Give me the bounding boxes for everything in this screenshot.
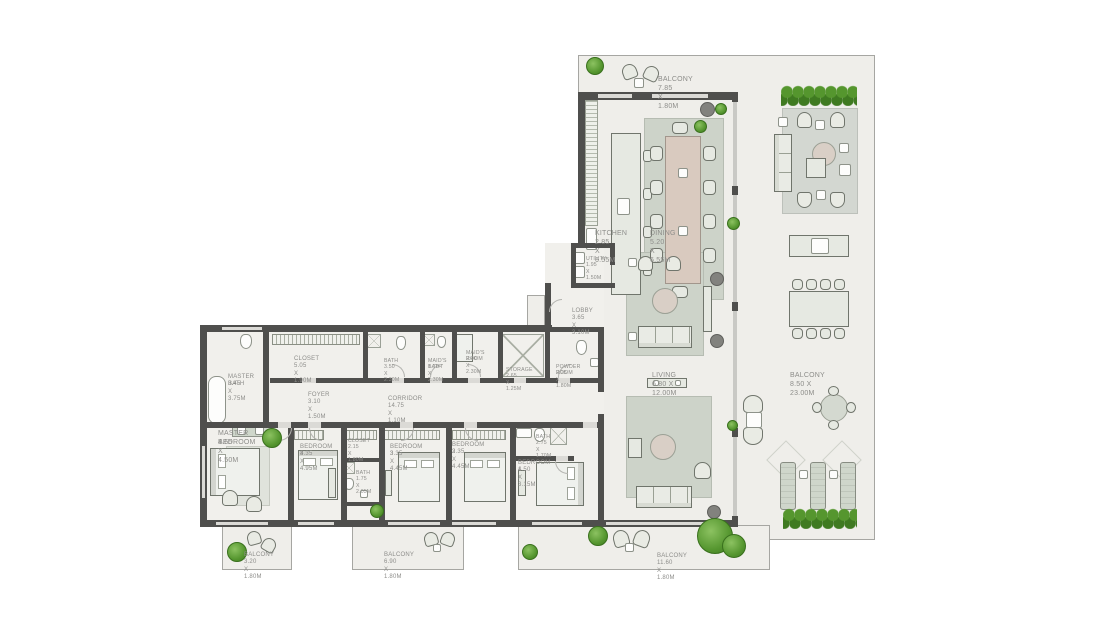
tree-icon bbox=[262, 428, 282, 448]
pillow bbox=[470, 460, 483, 468]
round-table-chair bbox=[812, 402, 822, 413]
side-table bbox=[628, 332, 637, 341]
dresser bbox=[328, 468, 336, 498]
toilet bbox=[396, 336, 406, 350]
room-dims: 2.25 X 1.80M bbox=[556, 370, 571, 389]
wicker-chair bbox=[743, 395, 763, 413]
room-dims: 3.35 X 4.45M bbox=[452, 449, 470, 472]
sofa bbox=[636, 486, 692, 508]
room-name: CORRIDOR bbox=[388, 396, 422, 404]
room-name: CLOSET bbox=[294, 356, 319, 364]
door-opening bbox=[583, 422, 597, 428]
wall bbox=[288, 428, 294, 521]
coffee-table bbox=[650, 434, 676, 460]
outdoor-dining-chair bbox=[820, 279, 831, 290]
wall-post bbox=[732, 302, 738, 311]
outdoor-dining-chair bbox=[792, 328, 803, 339]
pillow bbox=[567, 467, 575, 480]
shower bbox=[550, 427, 567, 445]
room-name: LOBBY bbox=[572, 308, 593, 316]
wardrobe bbox=[452, 430, 506, 440]
room-name: BALCONY bbox=[790, 371, 825, 380]
wall bbox=[545, 332, 550, 383]
room-dims: 2.15 X 1.80M bbox=[348, 444, 363, 463]
room-dims: 2.65 X 1.25M bbox=[506, 373, 521, 392]
side-table bbox=[839, 143, 849, 153]
room-dims: 3.35 X 4.45M bbox=[390, 451, 408, 474]
shower bbox=[367, 334, 381, 348]
headboard bbox=[211, 449, 216, 495]
side-table bbox=[628, 258, 637, 267]
side-table bbox=[778, 117, 788, 127]
wall bbox=[598, 414, 604, 527]
kitchen-counter bbox=[585, 100, 598, 226]
pouf bbox=[628, 438, 642, 458]
centerpiece bbox=[678, 226, 688, 236]
planter-pot bbox=[710, 272, 724, 286]
room-name: BALCONY bbox=[657, 553, 687, 561]
room-dims: 3.45 X 3.75M bbox=[228, 381, 246, 404]
dining-chair bbox=[703, 214, 716, 229]
hedge-row bbox=[781, 85, 857, 109]
sun-lounger bbox=[840, 462, 856, 510]
room-name: LIVING bbox=[652, 371, 676, 380]
outdoor-chair bbox=[797, 192, 812, 208]
room-name: BALCONY bbox=[244, 552, 274, 560]
shrub-icon bbox=[694, 120, 707, 133]
wall bbox=[571, 283, 615, 288]
shrub-icon bbox=[370, 504, 384, 518]
pillow bbox=[218, 475, 226, 489]
wall bbox=[571, 243, 576, 288]
room-dims: 3.10 X 1.50M bbox=[308, 399, 326, 422]
room-dims: 3.20 X 1.80M bbox=[244, 559, 262, 582]
dining-chair bbox=[703, 146, 716, 161]
room-name: KITCHEN bbox=[595, 229, 627, 238]
pillow bbox=[320, 458, 333, 466]
outdoor-dining-chair bbox=[806, 279, 817, 290]
room-name: FOYER bbox=[308, 392, 330, 400]
round-table-chair bbox=[846, 402, 856, 413]
armchair bbox=[694, 462, 711, 479]
bathtub bbox=[208, 376, 226, 424]
room-dims: 14.75 X 1.10M bbox=[388, 403, 406, 426]
side-table bbox=[816, 190, 826, 200]
round-table bbox=[820, 394, 848, 422]
dining-chair bbox=[650, 180, 663, 195]
centerpiece bbox=[678, 168, 688, 178]
wall bbox=[598, 332, 604, 392]
outdoor-chair bbox=[830, 112, 845, 128]
wall bbox=[510, 422, 516, 521]
outdoor-dining-chair bbox=[834, 279, 845, 290]
dining-chair bbox=[703, 248, 716, 263]
dresser bbox=[385, 470, 392, 496]
wall bbox=[578, 92, 585, 248]
balcony-door bbox=[532, 522, 582, 525]
outdoor-dining-table bbox=[789, 291, 849, 327]
window bbox=[598, 94, 632, 98]
room-name: BALCONY bbox=[658, 75, 693, 84]
wall-post bbox=[732, 186, 738, 195]
dining-chair bbox=[650, 146, 663, 161]
side-table bbox=[634, 78, 644, 88]
door-opening bbox=[468, 378, 480, 383]
bedroom-chair bbox=[246, 496, 262, 512]
room-dims: 2.75 X 1.70M bbox=[536, 440, 551, 459]
dining-chair bbox=[672, 122, 688, 134]
side-table bbox=[746, 412, 762, 428]
outdoor-sofa bbox=[774, 134, 792, 192]
room-dims: 4.65 X 4.50M bbox=[218, 438, 238, 465]
room-dims: 5.20 X 6.55M bbox=[650, 238, 670, 265]
balcony-door bbox=[298, 522, 334, 525]
wall-post bbox=[732, 92, 738, 102]
toilet bbox=[240, 334, 252, 349]
pillow bbox=[567, 487, 575, 500]
tree-icon bbox=[586, 57, 604, 75]
shrub-icon bbox=[715, 103, 727, 115]
wall-post bbox=[732, 516, 738, 526]
toilet bbox=[576, 340, 587, 355]
bedroom-chair bbox=[222, 490, 238, 506]
outdoor-chair bbox=[797, 112, 812, 128]
side-table bbox=[625, 543, 634, 552]
wall bbox=[363, 332, 368, 383]
room-dims: 8.50 X 23.00M bbox=[790, 380, 815, 398]
wall bbox=[420, 332, 425, 383]
outdoor-dining-chair bbox=[792, 279, 803, 290]
floor-plan-canvas: BALCONY 7.85 X 1.80M KITCHEN 2.85 X 6.55… bbox=[0, 0, 1100, 630]
sun-lounger bbox=[810, 462, 826, 510]
side-table bbox=[829, 470, 838, 479]
room-dims: 3.50 X 2.30M bbox=[384, 364, 399, 383]
wall bbox=[341, 422, 347, 521]
vanity bbox=[516, 428, 532, 438]
outdoor-dining-chair bbox=[820, 328, 831, 339]
room-dims: 6.90 X 1.80M bbox=[384, 559, 402, 582]
room-dims: 6.80 X 12.00M bbox=[652, 380, 677, 398]
pouf bbox=[806, 158, 826, 178]
side-table bbox=[815, 120, 825, 130]
headboard bbox=[578, 463, 583, 505]
room-name: BALCONY bbox=[384, 552, 414, 560]
room-dims: 3.65 X 3.10M bbox=[572, 315, 590, 338]
balcony-door bbox=[452, 522, 496, 525]
window bbox=[222, 327, 262, 330]
outdoor-chair bbox=[830, 192, 845, 208]
window bbox=[202, 446, 205, 498]
dining-chair bbox=[703, 180, 716, 195]
toilet bbox=[437, 336, 446, 348]
room-dims: 1.75 X 2.05M bbox=[356, 476, 371, 495]
planter-pot bbox=[700, 102, 715, 117]
wall bbox=[263, 332, 269, 422]
balcony-door bbox=[388, 522, 440, 525]
side-table bbox=[433, 544, 441, 552]
sun-lounger bbox=[780, 462, 796, 510]
room-name: DINING bbox=[650, 229, 676, 238]
dining-chair bbox=[650, 214, 663, 229]
wicker-chair bbox=[743, 427, 763, 445]
planter-pot bbox=[710, 334, 724, 348]
shrub-icon bbox=[727, 420, 738, 431]
room-dims: 5.05 X 1.90M bbox=[294, 363, 312, 386]
tree-icon bbox=[722, 534, 746, 558]
balcony-door bbox=[606, 522, 712, 525]
balcony-door bbox=[216, 522, 268, 525]
round-table-chair bbox=[828, 386, 839, 396]
room-dims: 1.70 X 2.30M bbox=[428, 364, 443, 383]
room-dims: 4.50 X 3.15M bbox=[518, 467, 536, 490]
sofa bbox=[638, 326, 692, 348]
shrub-icon bbox=[727, 217, 740, 230]
room-dims: 11.60 X 1.80M bbox=[657, 560, 675, 583]
tv-console bbox=[703, 286, 712, 332]
closet-wardrobe bbox=[272, 334, 360, 345]
room-dims: 2.40 X 2.30M bbox=[466, 356, 481, 375]
island-hob bbox=[617, 198, 630, 215]
bbq-grill bbox=[811, 238, 829, 254]
coffee-table bbox=[652, 288, 678, 314]
planter-pot bbox=[707, 505, 721, 519]
pillow bbox=[421, 460, 434, 468]
outdoor-dining-chair bbox=[806, 328, 817, 339]
hedge-row bbox=[783, 508, 857, 534]
tree-icon bbox=[588, 526, 608, 546]
wall bbox=[498, 332, 503, 383]
bedroom2-bed bbox=[464, 452, 506, 502]
wall bbox=[452, 332, 457, 383]
round-table-chair bbox=[828, 420, 839, 430]
tree-icon bbox=[522, 544, 538, 560]
room-dims: 3.35 X 4.95M bbox=[300, 451, 318, 474]
outdoor-dining-chair bbox=[834, 328, 845, 339]
room-dims: 7.85 X 1.80M bbox=[658, 84, 678, 111]
pillow bbox=[487, 460, 500, 468]
side-table bbox=[799, 470, 808, 479]
room-dims: 1.95 X 1.50M bbox=[586, 262, 601, 281]
side-table bbox=[839, 164, 851, 176]
